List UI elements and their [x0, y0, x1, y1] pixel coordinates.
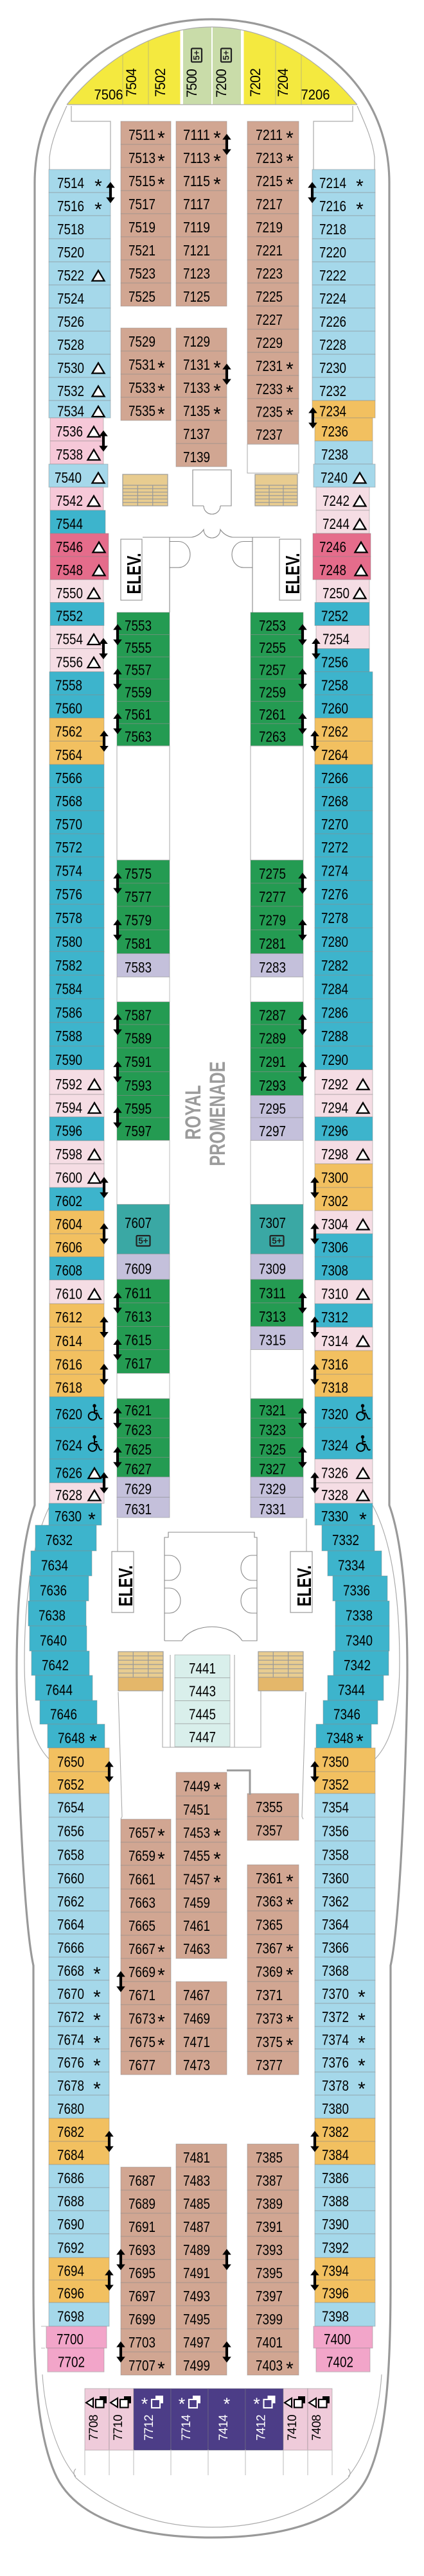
svg-text:7542: 7542	[56, 492, 83, 509]
svg-text:*: *	[157, 2358, 165, 2380]
svg-text:7588: 7588	[55, 1028, 82, 1044]
svg-text:5+: 5+	[192, 50, 202, 60]
svg-text:7388: 7388	[322, 2193, 349, 2209]
svg-text:7570: 7570	[55, 816, 82, 833]
svg-text:7499: 7499	[183, 2357, 210, 2374]
svg-text:7517: 7517	[128, 196, 155, 212]
svg-text:7544: 7544	[56, 515, 83, 532]
svg-text:7702: 7702	[58, 2354, 85, 2371]
svg-text:7366: 7366	[322, 1939, 349, 1956]
svg-text:7441: 7441	[189, 1660, 216, 1677]
svg-text:7237: 7237	[256, 426, 283, 443]
svg-text:7204: 7204	[275, 68, 291, 97]
svg-text:7592: 7592	[55, 1076, 82, 1093]
svg-text:7627: 7627	[125, 1461, 152, 1478]
svg-text:7471: 7471	[183, 2034, 210, 2050]
svg-text:7516: 7516	[57, 198, 84, 214]
svg-text:7298: 7298	[321, 1146, 348, 1163]
svg-text:7369: 7369	[256, 1964, 283, 1980]
svg-text:7211: 7211	[256, 126, 283, 143]
svg-text:7526: 7526	[57, 313, 84, 330]
svg-text:7671: 7671	[128, 1987, 155, 2003]
svg-text:7640: 7640	[40, 1632, 67, 1649]
svg-text:7555: 7555	[125, 639, 152, 656]
svg-text:7242: 7242	[322, 492, 349, 509]
svg-text:7714: 7714	[180, 2414, 193, 2441]
svg-text:7323: 7323	[259, 1422, 286, 1439]
svg-text:7263: 7263	[259, 729, 286, 745]
svg-text:7672: 7672	[57, 2009, 84, 2025]
svg-text:7561: 7561	[125, 706, 152, 723]
svg-text:7214: 7214	[319, 175, 346, 191]
svg-text:7324: 7324	[321, 1437, 348, 1454]
svg-text:7123: 7123	[183, 265, 210, 282]
svg-text:7552: 7552	[56, 608, 83, 625]
svg-text:7318: 7318	[321, 1379, 348, 1396]
svg-text:7133: 7133	[183, 379, 210, 396]
svg-text:7680: 7680	[57, 2100, 84, 2117]
svg-text:7644: 7644	[46, 1682, 73, 1699]
svg-text:7524: 7524	[57, 290, 84, 307]
svg-text:7308: 7308	[321, 1262, 348, 1279]
svg-text:7616: 7616	[55, 1356, 82, 1373]
svg-text:7614: 7614	[55, 1333, 82, 1349]
svg-text:7402: 7402	[326, 2354, 353, 2371]
svg-text:7664: 7664	[57, 1916, 84, 1933]
svg-text:7255: 7255	[259, 639, 286, 656]
svg-text:*: *	[224, 2394, 231, 2414]
svg-text:7638: 7638	[39, 1607, 66, 1624]
svg-text:ELEV.: ELEV.	[281, 553, 304, 594]
svg-text:7217: 7217	[256, 196, 283, 212]
svg-text:7582: 7582	[55, 957, 82, 974]
svg-text:7139: 7139	[183, 449, 210, 465]
svg-text:7563: 7563	[125, 729, 152, 745]
svg-text:7673: 7673	[128, 2010, 155, 2027]
svg-text:7233: 7233	[256, 381, 283, 397]
svg-text:7538: 7538	[56, 446, 83, 463]
svg-text:7395: 7395	[256, 2265, 283, 2281]
svg-text:7506: 7506	[94, 87, 123, 103]
svg-text:7260: 7260	[321, 700, 348, 717]
svg-text:7553: 7553	[125, 617, 152, 634]
svg-text:7691: 7691	[128, 2218, 155, 2235]
svg-text:7125: 7125	[183, 288, 210, 305]
svg-text:7525: 7525	[128, 288, 155, 305]
svg-text:7283: 7283	[259, 959, 286, 976]
svg-text:7372: 7372	[322, 2009, 349, 2025]
svg-text:7617: 7617	[125, 1355, 152, 1372]
svg-text:7554: 7554	[56, 631, 83, 648]
svg-text:7254: 7254	[322, 631, 349, 648]
svg-text:7257: 7257	[259, 662, 286, 679]
svg-text:7331: 7331	[259, 1501, 286, 1517]
svg-text:7314: 7314	[321, 1333, 348, 1349]
svg-text:7386: 7386	[322, 2170, 349, 2186]
svg-text:7397: 7397	[256, 2288, 283, 2304]
svg-text:7522: 7522	[57, 267, 84, 284]
svg-text:7667: 7667	[128, 1941, 155, 1957]
svg-text:7231: 7231	[256, 358, 283, 374]
svg-text:7590: 7590	[55, 1051, 82, 1068]
svg-text:7352: 7352	[322, 1776, 349, 1793]
svg-text:7519: 7519	[128, 219, 155, 236]
svg-text:7250: 7250	[322, 585, 349, 601]
svg-text:7513: 7513	[128, 150, 155, 166]
svg-text:7650: 7650	[57, 1754, 84, 1770]
svg-text:7121: 7121	[183, 242, 210, 259]
svg-text:7304: 7304	[321, 1216, 348, 1232]
svg-text:7600: 7600	[55, 1170, 82, 1186]
svg-text:7461: 7461	[183, 1917, 210, 1934]
svg-text:7213: 7213	[256, 150, 283, 166]
svg-text:7620: 7620	[55, 1406, 82, 1422]
svg-text:7336: 7336	[343, 1582, 370, 1599]
svg-text:7394: 7394	[322, 2263, 349, 2279]
svg-text:7389: 7389	[256, 2195, 283, 2212]
svg-text:7453: 7453	[183, 1824, 210, 1841]
svg-text:7623: 7623	[125, 1422, 152, 1439]
svg-text:7586: 7586	[55, 1004, 82, 1021]
svg-text:7665: 7665	[128, 1917, 155, 1934]
svg-text:7504: 7504	[123, 68, 139, 97]
svg-text:7710: 7710	[112, 2415, 125, 2441]
svg-text:7321: 7321	[259, 1402, 286, 1419]
svg-text:7399: 7399	[256, 2311, 283, 2328]
svg-text:7634: 7634	[41, 1557, 68, 1574]
svg-text:7580: 7580	[55, 933, 82, 950]
svg-text:7384: 7384	[322, 2147, 349, 2163]
svg-text:7294: 7294	[321, 1100, 348, 1116]
svg-text:7312: 7312	[321, 1309, 348, 1326]
svg-text:7630: 7630	[55, 1508, 82, 1525]
svg-text:7497: 7497	[183, 2334, 210, 2351]
svg-text:7607: 7607	[125, 1215, 152, 1231]
svg-text:7377: 7377	[256, 2057, 283, 2073]
svg-text:7564: 7564	[55, 747, 82, 763]
svg-text:7129: 7129	[183, 333, 210, 350]
svg-text:7382: 7382	[322, 2123, 349, 2140]
svg-text:7459: 7459	[183, 1894, 210, 1911]
svg-text:7365: 7365	[256, 1917, 283, 1933]
svg-text:7621: 7621	[125, 1402, 152, 1419]
svg-text:7400: 7400	[324, 2331, 351, 2347]
svg-text:7291: 7291	[259, 1053, 286, 1070]
svg-text:7119: 7119	[183, 219, 210, 236]
svg-text:7252: 7252	[321, 608, 348, 625]
svg-text:7135: 7135	[183, 402, 210, 419]
svg-text:7361: 7361	[256, 1870, 283, 1887]
svg-text:7403: 7403	[256, 2357, 283, 2374]
svg-text:7248: 7248	[319, 562, 346, 578]
svg-text:7219: 7219	[256, 219, 283, 236]
svg-text:7535: 7535	[128, 402, 155, 419]
svg-text:7131: 7131	[183, 356, 210, 373]
svg-text:*: *	[157, 404, 165, 425]
svg-text:7115: 7115	[183, 173, 210, 189]
svg-text:7354: 7354	[322, 1799, 349, 1816]
svg-text:7587: 7587	[125, 1007, 152, 1023]
svg-text:7289: 7289	[259, 1030, 286, 1046]
svg-text:7485: 7485	[183, 2195, 210, 2212]
svg-text:7221: 7221	[256, 242, 283, 259]
svg-text:7295: 7295	[259, 1100, 286, 1117]
svg-text:7578: 7578	[55, 910, 82, 926]
svg-text:7449: 7449	[183, 1778, 210, 1795]
svg-text:*: *	[286, 2358, 294, 2380]
svg-text:7520: 7520	[57, 244, 84, 261]
svg-text:7712: 7712	[143, 2415, 156, 2441]
svg-text:7659: 7659	[128, 1847, 155, 1864]
svg-text:7320: 7320	[321, 1406, 348, 1422]
svg-text:7306: 7306	[321, 1239, 348, 1256]
svg-text:ROYAL: ROYAL	[181, 1085, 206, 1140]
svg-text:7654: 7654	[57, 1799, 84, 1816]
svg-text:7326: 7326	[321, 1465, 348, 1482]
svg-text:7594: 7594	[55, 1100, 82, 1116]
svg-text:7560: 7560	[55, 700, 82, 717]
svg-text:7611: 7611	[125, 1285, 152, 1302]
svg-text:7356: 7356	[322, 1823, 349, 1840]
svg-text:7332: 7332	[332, 1532, 359, 1548]
svg-text:7502: 7502	[152, 68, 168, 97]
svg-text:7677: 7677	[128, 2057, 155, 2073]
svg-text:7557: 7557	[125, 662, 152, 679]
svg-text:7280: 7280	[321, 933, 348, 950]
svg-text:7309: 7309	[259, 1260, 286, 1277]
svg-text:5+: 5+	[272, 1236, 282, 1246]
svg-text:7240: 7240	[321, 469, 348, 486]
svg-text:7626: 7626	[55, 1465, 82, 1482]
svg-text:7661: 7661	[128, 1871, 155, 1888]
svg-text:7629: 7629	[125, 1481, 152, 1498]
svg-text:7111: 7111	[183, 126, 210, 143]
svg-text:7373: 7373	[256, 2010, 283, 2027]
svg-text:7548: 7548	[56, 562, 83, 578]
svg-text:7690: 7690	[57, 2216, 84, 2233]
svg-text:7113: 7113	[183, 150, 210, 166]
svg-text:7625: 7625	[125, 1441, 152, 1458]
svg-text:7385: 7385	[256, 2149, 283, 2166]
svg-text:7576: 7576	[55, 886, 82, 903]
svg-text:7445: 7445	[189, 1706, 216, 1722]
svg-text:7215: 7215	[256, 173, 283, 189]
svg-text:7708: 7708	[87, 2415, 101, 2441]
svg-text:7238: 7238	[321, 446, 348, 463]
svg-text:7293: 7293	[259, 1077, 286, 1094]
svg-text:7596: 7596	[55, 1123, 82, 1139]
svg-text:7390: 7390	[322, 2216, 349, 2233]
svg-text:7624: 7624	[55, 1437, 82, 1454]
svg-text:7281: 7281	[259, 935, 286, 952]
svg-text:7230: 7230	[319, 359, 346, 376]
svg-text:7608: 7608	[55, 1262, 82, 1279]
svg-text:ELEV.: ELEV.	[114, 1566, 137, 1607]
svg-text:7693: 7693	[128, 2242, 155, 2258]
svg-text:7338: 7338	[346, 1607, 373, 1624]
svg-text:7674: 7674	[57, 2032, 84, 2048]
svg-text:7229: 7229	[256, 334, 283, 351]
svg-text:ELEV.: ELEV.	[293, 1566, 315, 1607]
svg-text:7277: 7277	[259, 888, 286, 905]
svg-text:7467: 7467	[183, 1987, 210, 2003]
svg-text:7284: 7284	[321, 981, 348, 998]
svg-text:7443: 7443	[189, 1683, 216, 1700]
svg-text:7282: 7282	[321, 957, 348, 974]
svg-text:7689: 7689	[128, 2195, 155, 2212]
svg-text:7568: 7568	[55, 793, 82, 809]
svg-text:7412: 7412	[255, 2415, 269, 2441]
svg-text:7266: 7266	[321, 770, 348, 786]
svg-text:7327: 7327	[259, 1461, 286, 1478]
svg-text:7370: 7370	[322, 1985, 349, 2002]
svg-text:7642: 7642	[42, 1657, 69, 1673]
svg-text:7500: 7500	[184, 69, 200, 98]
svg-text:7220: 7220	[319, 244, 346, 261]
svg-text:7371: 7371	[256, 1987, 283, 2003]
svg-text:7408: 7408	[310, 2415, 324, 2441]
svg-text:7591: 7591	[125, 1053, 152, 1070]
svg-text:*: *	[253, 2394, 260, 2414]
svg-text:7602: 7602	[55, 1193, 82, 1209]
svg-text:7344: 7344	[338, 1682, 365, 1699]
svg-text:7584: 7584	[55, 981, 82, 998]
svg-text:7583: 7583	[125, 959, 152, 976]
svg-text:7707: 7707	[128, 2357, 155, 2374]
svg-text:7660: 7660	[57, 1870, 84, 1887]
svg-text:7276: 7276	[321, 886, 348, 903]
svg-text:7364: 7364	[322, 1916, 349, 1933]
svg-text:7340: 7340	[346, 1632, 373, 1649]
svg-text:7447: 7447	[189, 1729, 216, 1745]
svg-text:7534: 7534	[57, 403, 84, 420]
svg-text:7529: 7529	[128, 333, 155, 350]
svg-text:7315: 7315	[259, 1331, 286, 1348]
svg-text:7256: 7256	[321, 654, 348, 671]
svg-text:7392: 7392	[322, 2240, 349, 2256]
svg-text:7246: 7246	[319, 539, 346, 555]
svg-text:7228: 7228	[319, 336, 346, 353]
svg-text:5+: 5+	[222, 50, 231, 60]
svg-text:7518: 7518	[57, 221, 84, 238]
svg-text:7662: 7662	[57, 1893, 84, 1910]
svg-text:7264: 7264	[321, 747, 348, 763]
svg-text:7358: 7358	[322, 1847, 349, 1863]
svg-text:7262: 7262	[321, 723, 348, 740]
svg-text:7572: 7572	[55, 839, 82, 856]
svg-text:7684: 7684	[57, 2147, 84, 2163]
svg-text:7348: 7348	[326, 1730, 353, 1747]
svg-text:7700: 7700	[57, 2331, 84, 2347]
svg-text:7401: 7401	[256, 2334, 283, 2351]
svg-text:7606: 7606	[55, 1239, 82, 1256]
svg-text:7218: 7218	[319, 221, 346, 238]
svg-text:7530: 7530	[57, 359, 84, 376]
svg-text:7469: 7469	[183, 2010, 210, 2027]
svg-text:7297: 7297	[259, 1123, 286, 1139]
svg-text:7279: 7279	[259, 912, 286, 928]
svg-text:7259: 7259	[259, 684, 286, 700]
svg-text:7657: 7657	[128, 1824, 155, 1841]
svg-text:7676: 7676	[57, 2054, 84, 2071]
svg-text:7514: 7514	[57, 175, 84, 191]
svg-text:7350: 7350	[322, 1754, 349, 1770]
svg-text:7342: 7342	[344, 1657, 371, 1673]
svg-text:7628: 7628	[55, 1487, 82, 1503]
svg-text:7278: 7278	[321, 910, 348, 926]
svg-text:7696: 7696	[57, 2285, 84, 2302]
svg-text:7610: 7610	[55, 1286, 82, 1302]
svg-text:7272: 7272	[321, 839, 348, 856]
svg-text:7556: 7556	[56, 654, 83, 671]
svg-text:7398: 7398	[322, 2308, 349, 2325]
svg-text:7533: 7533	[128, 379, 155, 396]
svg-text:7636: 7636	[40, 1582, 67, 1599]
svg-text:7668: 7668	[57, 1962, 84, 1979]
svg-text:7311: 7311	[259, 1285, 286, 1302]
svg-text:7682: 7682	[57, 2123, 84, 2140]
svg-text:7463: 7463	[183, 1941, 210, 1957]
svg-text:7575: 7575	[125, 865, 152, 882]
svg-text:7631: 7631	[125, 1501, 152, 1517]
svg-text:7325: 7325	[259, 1441, 286, 1458]
svg-text:7523: 7523	[128, 265, 155, 282]
svg-text:7648: 7648	[58, 1730, 85, 1747]
svg-text:7589: 7589	[125, 1030, 152, 1046]
svg-text:7577: 7577	[125, 888, 152, 905]
svg-text:7562: 7562	[55, 723, 82, 740]
svg-text:7355: 7355	[256, 1799, 283, 1815]
svg-text:7253: 7253	[259, 617, 286, 634]
svg-text:7302: 7302	[321, 1193, 348, 1209]
svg-text:7658: 7658	[57, 1847, 84, 1863]
svg-text:7274: 7274	[321, 862, 348, 879]
svg-text:7360: 7360	[322, 1870, 349, 1887]
svg-text:7652: 7652	[57, 1776, 84, 1793]
svg-text:7206: 7206	[301, 87, 330, 103]
svg-text:7244: 7244	[322, 515, 349, 532]
svg-text:7387: 7387	[256, 2172, 283, 2189]
svg-text:*: *	[179, 2394, 186, 2414]
svg-text:7316: 7316	[321, 1356, 348, 1373]
svg-text:7675: 7675	[128, 2034, 155, 2050]
svg-text:7669: 7669	[128, 1964, 155, 1980]
svg-text:7597: 7597	[125, 1123, 152, 1139]
svg-text:7687: 7687	[128, 2172, 155, 2189]
svg-text:7559: 7559	[125, 684, 152, 700]
svg-text:*: *	[141, 2394, 148, 2414]
svg-text:7307: 7307	[259, 1215, 286, 1231]
svg-text:7286: 7286	[321, 1004, 348, 1021]
svg-text:7451: 7451	[183, 1801, 210, 1818]
svg-text:7566: 7566	[55, 770, 82, 786]
svg-text:7391: 7391	[256, 2218, 283, 2235]
svg-text:7694: 7694	[57, 2263, 84, 2279]
svg-text:7200: 7200	[213, 69, 229, 98]
svg-text:7656: 7656	[57, 1823, 84, 1840]
svg-text:7615: 7615	[125, 1331, 152, 1348]
svg-text:7666: 7666	[57, 1939, 84, 1956]
svg-text:7375: 7375	[256, 2034, 283, 2050]
svg-text:7374: 7374	[322, 2032, 349, 2048]
svg-text:7376: 7376	[322, 2054, 349, 2071]
svg-text:7216: 7216	[319, 198, 346, 214]
svg-text:7396: 7396	[322, 2285, 349, 2302]
svg-text:7362: 7362	[322, 1893, 349, 1910]
svg-text:7574: 7574	[55, 862, 82, 879]
svg-text:7232: 7232	[319, 383, 346, 399]
svg-text:7546: 7546	[56, 539, 83, 555]
